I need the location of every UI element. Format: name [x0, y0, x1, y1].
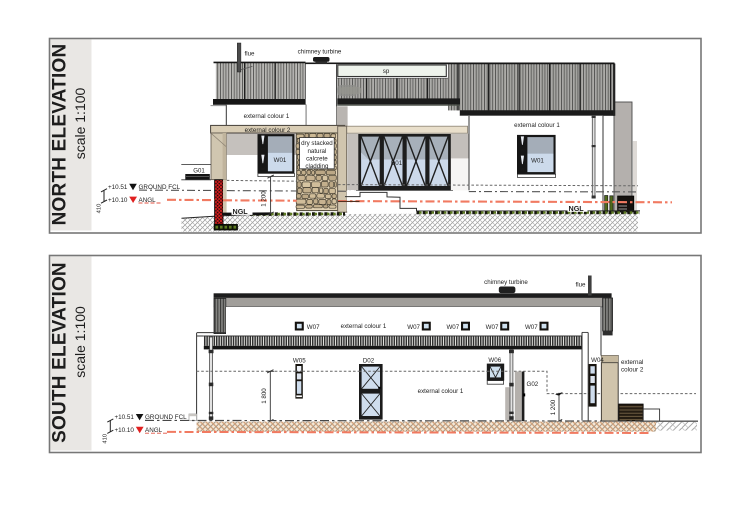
svg-text:GROUND FCL: GROUND FCL	[145, 414, 187, 421]
svg-text:scale 1:100: scale 1:100	[72, 87, 88, 159]
svg-text:external colour 1: external colour 1	[244, 113, 290, 120]
svg-text:W: W	[521, 167, 525, 172]
svg-text:W07: W07	[307, 324, 320, 331]
svg-text:external colour 1: external colour 1	[418, 388, 464, 395]
svg-text:external colour 1: external colour 1	[341, 323, 387, 330]
svg-text:cladding: cladding	[305, 163, 329, 170]
svg-text:calcrete: calcrete	[306, 155, 328, 162]
svg-text:W01: W01	[531, 158, 544, 165]
svg-text:+10.10: +10.10	[108, 197, 128, 204]
svg-text:colour 2: colour 2	[621, 367, 644, 374]
svg-text:W: W	[261, 166, 265, 171]
svg-text:W07: W07	[525, 324, 538, 331]
svg-text:NORTH ELEVATION: NORTH ELEVATION	[50, 44, 71, 226]
svg-text:external: external	[621, 359, 643, 366]
svg-text:+10.10: +10.10	[115, 427, 135, 434]
svg-text:+10.51: +10.51	[115, 414, 135, 421]
svg-text:W07: W07	[446, 324, 459, 331]
svg-text:W04: W04	[591, 357, 604, 364]
svg-text:flue: flue	[576, 282, 587, 289]
svg-text:W05: W05	[293, 357, 306, 364]
svg-text:natural: natural	[307, 148, 326, 155]
svg-text:SOUTH ELEVATION: SOUTH ELEVATION	[50, 262, 71, 443]
svg-text:G02: G02	[527, 381, 539, 388]
svg-text:chimney turbine: chimney turbine	[484, 279, 528, 286]
svg-text:D02: D02	[363, 357, 375, 364]
svg-text:sp: sp	[383, 68, 390, 75]
svg-text:+10.51: +10.51	[108, 184, 128, 191]
svg-text:W07: W07	[407, 324, 420, 331]
svg-text:410: 410	[103, 434, 109, 444]
svg-text:G01: G01	[193, 167, 205, 174]
svg-text:D01: D01	[391, 160, 403, 167]
svg-text:external colour 2: external colour 2	[245, 127, 291, 134]
svg-text:W: W	[261, 147, 265, 152]
svg-text:1 200: 1 200	[261, 191, 268, 207]
svg-text:GROUND FCL: GROUND FCL	[139, 184, 181, 191]
svg-text:1 200: 1 200	[550, 399, 557, 415]
svg-text:W: W	[521, 147, 525, 152]
svg-text:external colour 1: external colour 1	[514, 122, 560, 129]
svg-text:W06: W06	[488, 357, 501, 364]
svg-text:dry stacked: dry stacked	[301, 140, 333, 147]
svg-text:scale 1:100: scale 1:100	[72, 306, 88, 378]
svg-text:flue: flue	[245, 51, 256, 58]
svg-text:W01: W01	[274, 157, 287, 164]
svg-text:NGL: NGL	[233, 207, 249, 216]
svg-text:NGL: NGL	[569, 204, 585, 213]
svg-text:W07: W07	[486, 324, 499, 331]
svg-text:1 800: 1 800	[261, 388, 268, 404]
svg-text:410: 410	[97, 204, 103, 214]
svg-text:chimney turbine: chimney turbine	[298, 49, 342, 56]
